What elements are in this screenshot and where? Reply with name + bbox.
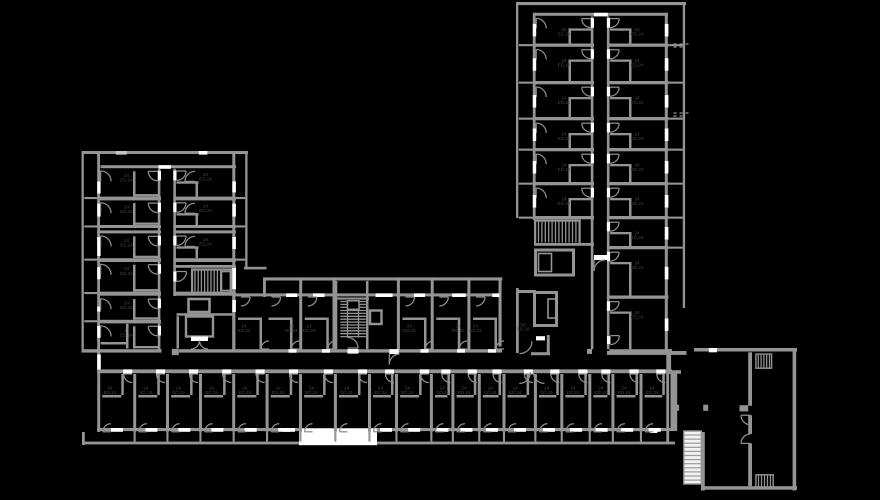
svg-text:EG.24: EG.24: [239, 390, 252, 395]
svg-text:EG.24: EG.24: [484, 390, 497, 395]
svg-text:EG.24: EG.24: [558, 167, 571, 172]
svg-text:EG.24: EG.24: [403, 328, 416, 333]
svg-text:EG.24: EG.24: [199, 241, 212, 246]
svg-text:EG.24: EG.24: [509, 390, 522, 395]
svg-text:EG.24: EG.24: [238, 328, 251, 333]
svg-text:EG.24: EG.24: [104, 390, 117, 395]
svg-text:EG.24: EG.24: [452, 328, 465, 333]
svg-text:EG.24: EG.24: [140, 390, 153, 395]
svg-text:EG.24: EG.24: [172, 390, 185, 395]
svg-text:EG.24: EG.24: [631, 265, 644, 270]
svg-text:EG.24: EG.24: [558, 100, 571, 105]
svg-text:EG.24: EG.24: [540, 390, 553, 395]
svg-text:EG.24: EG.24: [458, 390, 471, 395]
svg-text:EG.24: EG.24: [618, 390, 631, 395]
svg-text:EG.24: EG.24: [436, 390, 449, 395]
svg-text:EG.24: EG.24: [305, 390, 318, 395]
svg-text:EG.24: EG.24: [558, 201, 571, 206]
svg-text:EG.24: EG.24: [558, 32, 571, 37]
svg-text:EG.24: EG.24: [340, 390, 353, 395]
svg-text:EG.24: EG.24: [558, 136, 571, 141]
svg-text:EG.24: EG.24: [631, 167, 644, 172]
svg-text:EG.24: EG.24: [517, 327, 530, 332]
svg-text:EG.24: EG.24: [631, 100, 644, 105]
svg-text:EG.24: EG.24: [646, 390, 659, 395]
svg-text:EG.24: EG.24: [469, 328, 482, 333]
svg-text:EG.24: EG.24: [120, 305, 133, 310]
svg-text:EG.24: EG.24: [120, 177, 133, 182]
svg-text:EG.24: EG.24: [631, 201, 644, 206]
svg-text:EG.24: EG.24: [595, 390, 608, 395]
svg-text:EG.24: EG.24: [199, 176, 212, 181]
svg-text:EG.24: EG.24: [272, 390, 285, 395]
svg-text:EG.24: EG.24: [558, 63, 571, 68]
svg-text:EG.24: EG.24: [374, 390, 387, 395]
svg-text:EG.24: EG.24: [205, 390, 218, 395]
svg-text:EG.24: EG.24: [120, 209, 133, 214]
svg-text:EG.24: EG.24: [631, 315, 644, 320]
svg-text:EG.24: EG.24: [631, 32, 644, 37]
svg-text:EG.24: EG.24: [120, 271, 133, 276]
svg-text:EG.24: EG.24: [631, 235, 644, 240]
svg-text:EG.24: EG.24: [631, 63, 644, 68]
svg-text:EG.24: EG.24: [303, 328, 316, 333]
svg-text:EG.24: EG.24: [567, 390, 580, 395]
svg-text:EG.24: EG.24: [120, 242, 133, 247]
svg-text:EG.24: EG.24: [199, 208, 212, 213]
svg-text:EG.24: EG.24: [401, 390, 414, 395]
svg-text:EG.24: EG.24: [631, 136, 644, 141]
svg-text:EG.24: EG.24: [285, 328, 298, 333]
